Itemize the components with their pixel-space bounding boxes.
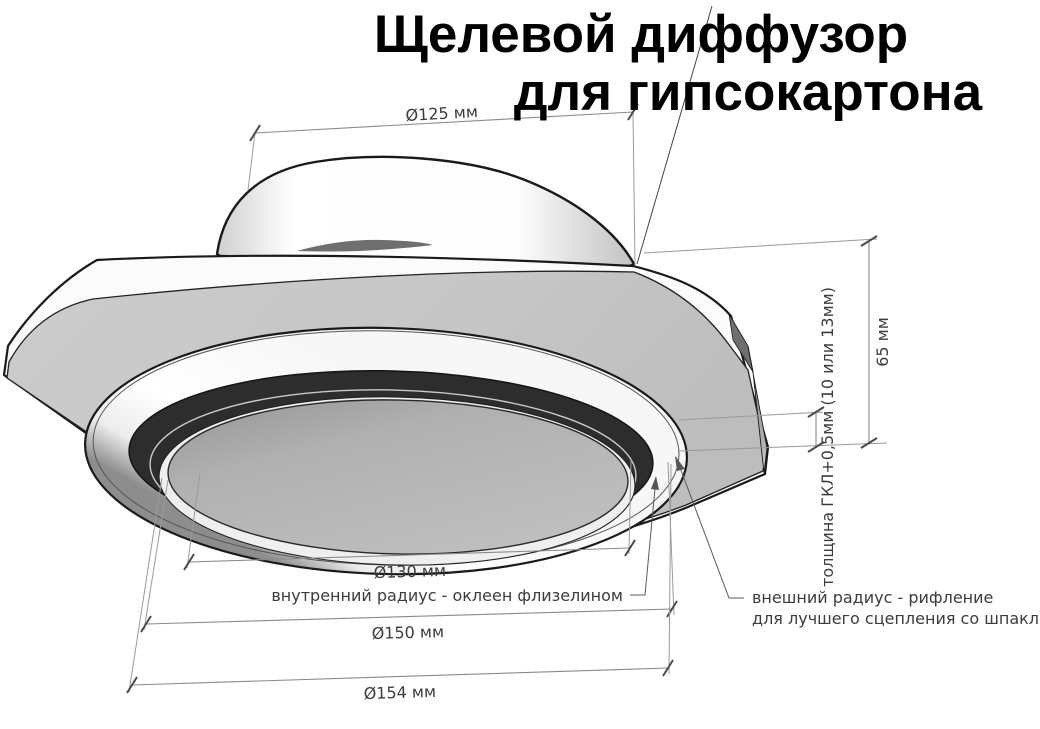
dim-label-150: Ø150 мм [371,622,444,643]
dim-label-130: Ø130 мм [373,561,446,582]
slot-diffuser-drawing: Ø125 мм 65 мм толщина ГКЛ+0,5мм (10 или … [0,0,1040,729]
page-title-line2: для гипсокартона [514,63,983,122]
dim-label-65: 65 мм [873,317,892,367]
diffuser-3d-model [4,157,768,582]
inner-radius-note: внутренний радиус - оклеен флизелином [271,586,623,605]
dim-label-125: Ø125 мм [405,102,478,125]
collar [217,157,634,266]
dim-label-154: Ø154 мм [363,682,436,703]
dim-label-thickness: толщина ГКЛ+0,5мм (10 или 13мм) [818,287,837,587]
outer-radius-note-line2: для лучшего сцепления со шпаклёвкой [752,609,1040,628]
technical-drawing: Ø125 мм 65 мм толщина ГКЛ+0,5мм (10 или … [0,0,1040,729]
page-title-line1: Щелевой диффузор [374,5,908,64]
outer-radius-note-line1: внешний радиус - рифление [752,588,993,607]
